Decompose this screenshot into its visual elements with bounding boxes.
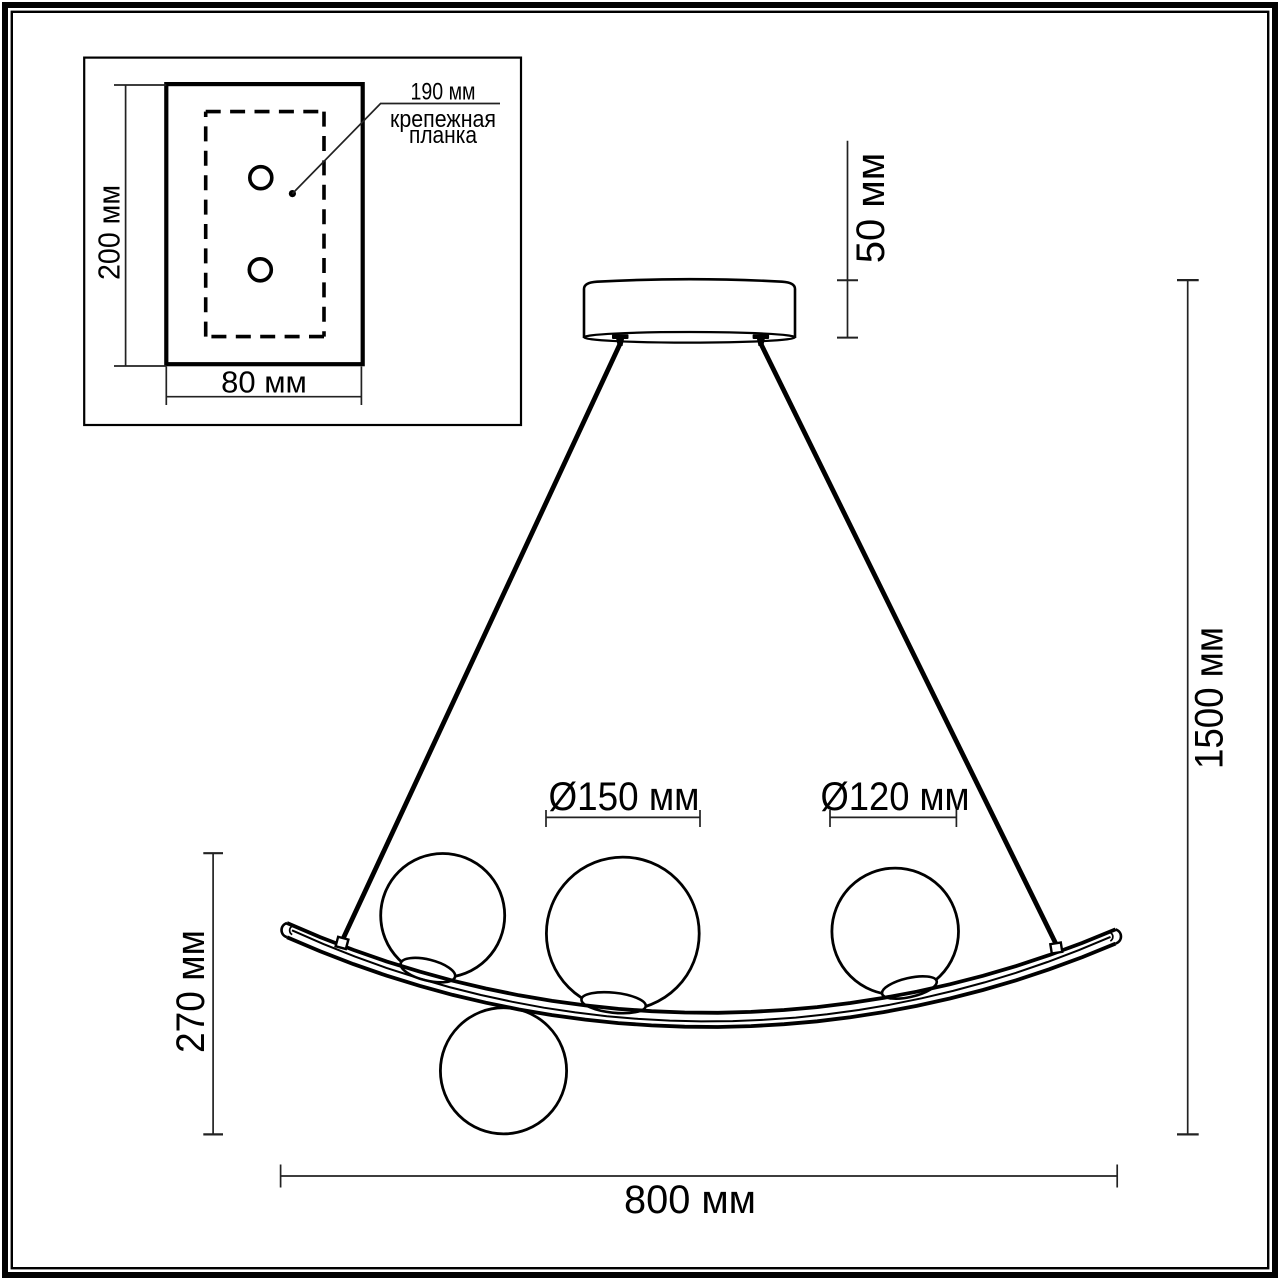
svg-text:планка: планка xyxy=(409,122,478,149)
svg-text:80 мм: 80 мм xyxy=(221,365,307,400)
svg-text:200 мм: 200 мм xyxy=(92,185,127,280)
svg-text:Ø150 мм: Ø150 мм xyxy=(549,775,700,819)
svg-text:270 мм: 270 мм xyxy=(169,930,213,1053)
svg-text:50 мм: 50 мм xyxy=(849,153,893,264)
svg-text:800 мм: 800 мм xyxy=(624,1178,756,1222)
svg-text:Ø120 мм: Ø120 мм xyxy=(821,775,970,819)
svg-text:1500 мм: 1500 мм xyxy=(1188,627,1232,769)
svg-text:190 мм: 190 мм xyxy=(411,78,476,105)
